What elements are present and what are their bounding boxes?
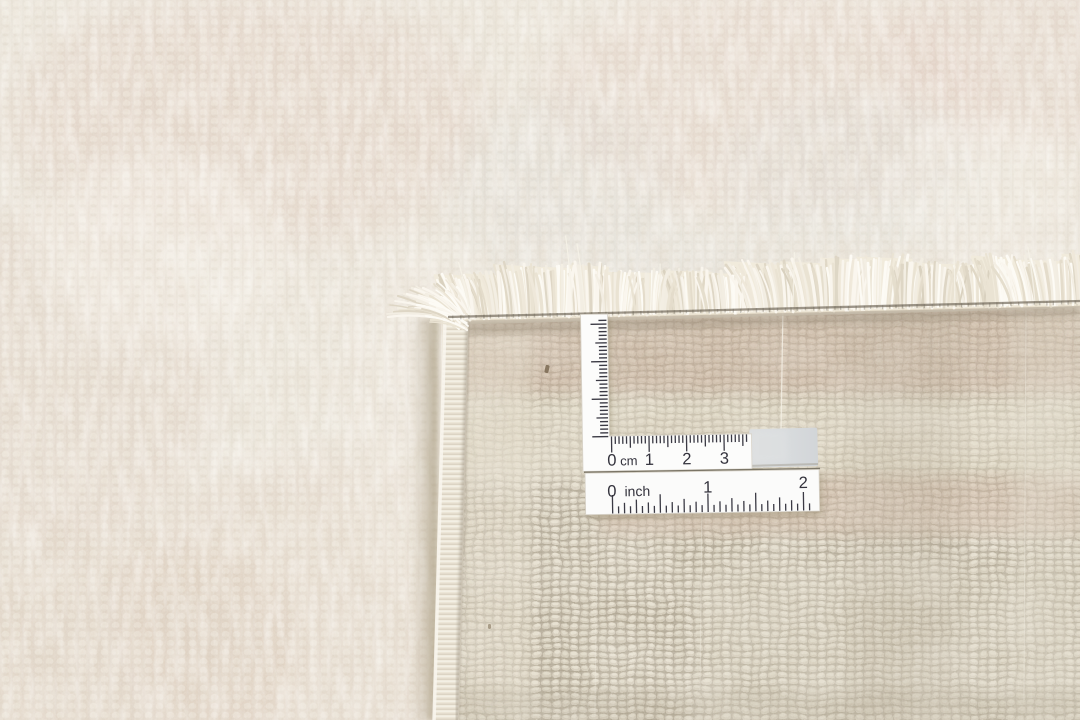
svg-text:cm: cm	[620, 453, 638, 468]
svg-text:1: 1	[645, 451, 654, 469]
svg-text:0: 0	[607, 451, 616, 469]
svg-text:2: 2	[682, 450, 691, 468]
svg-text:inch: inch	[624, 483, 650, 499]
svg-text:1: 1	[703, 478, 712, 496]
svg-text:3: 3	[720, 450, 729, 468]
svg-text:0: 0	[607, 482, 616, 500]
svg-text:2: 2	[798, 474, 807, 492]
